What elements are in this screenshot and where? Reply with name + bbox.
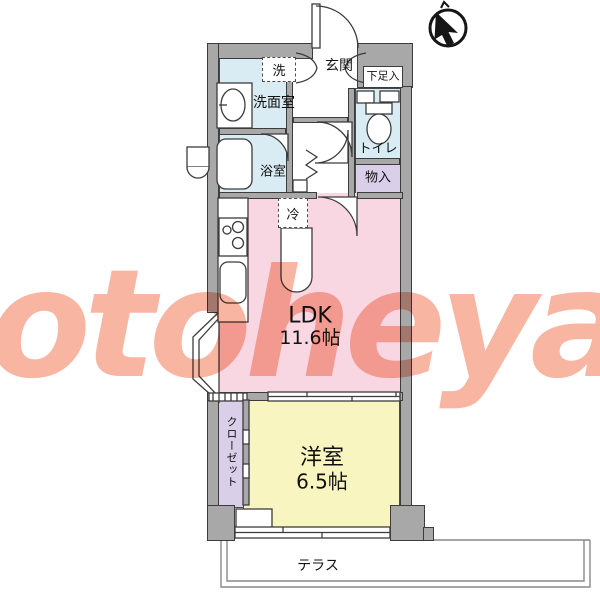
- shoe-cabinet-label: 下足入: [367, 71, 400, 84]
- terrace-label: テラス: [297, 558, 339, 574]
- western-room-label: 洋室: [300, 445, 344, 470]
- washer-space: 洗: [262, 57, 296, 82]
- floorplan-linework: [0, 0, 600, 600]
- floorplan-canvas: 洗 冷 玄関 下足入 洗面室 浴室 トイレ 物入 LDK 11.6帖 クローゼッ…: [0, 0, 600, 600]
- washroom-label: 洗面室: [253, 95, 295, 111]
- refrigerator-space: 冷: [278, 198, 308, 228]
- ldk-label: LDK: [288, 303, 332, 328]
- storage-label: 物入: [365, 172, 391, 187]
- western-room-size-label: 6.5帖: [296, 471, 348, 494]
- closet-label: クローゼット: [223, 416, 239, 488]
- refrigerator-label: 冷: [286, 204, 299, 223]
- ldk-size-label: 11.6帖: [279, 328, 340, 350]
- north-arrow-icon: [422, 0, 482, 56]
- toilet-label: トイレ: [358, 143, 397, 158]
- entrance-label: 玄関: [325, 58, 353, 74]
- washer-label: 洗: [272, 60, 285, 79]
- bathroom-label: 浴室: [260, 166, 286, 181]
